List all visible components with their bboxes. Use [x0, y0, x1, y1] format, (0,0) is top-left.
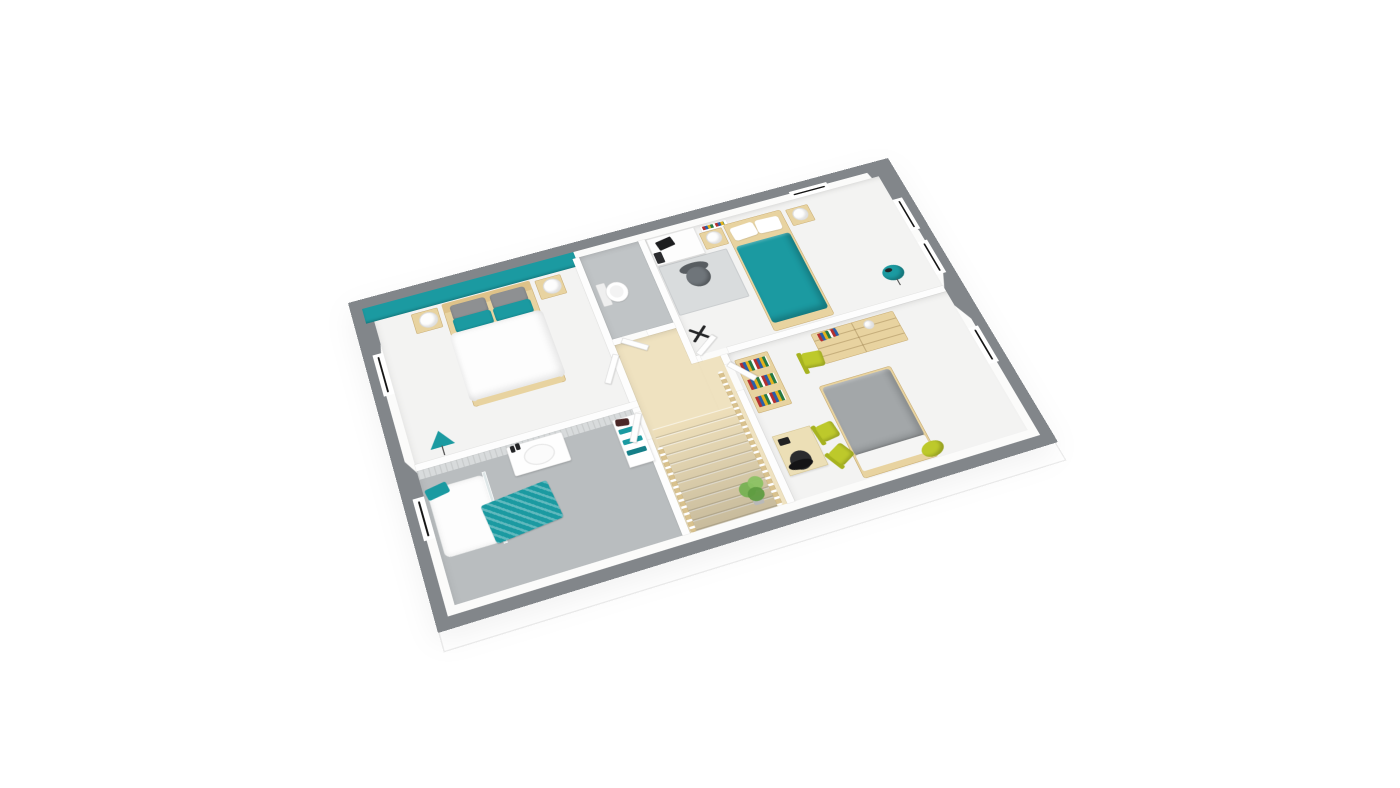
floorplan-stage [0, 0, 1400, 788]
